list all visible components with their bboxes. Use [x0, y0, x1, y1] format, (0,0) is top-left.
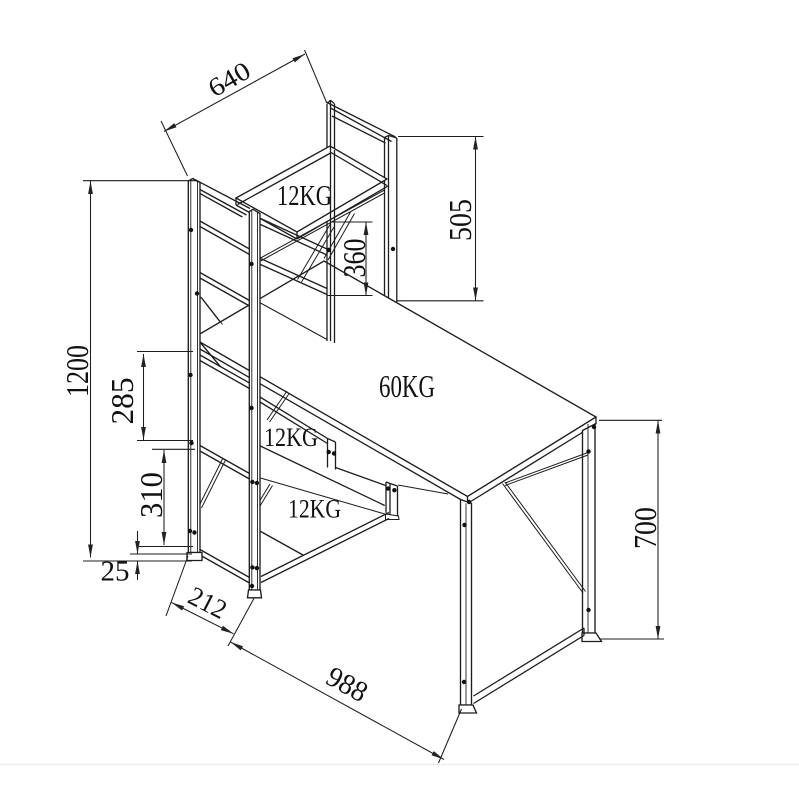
svg-text:360: 360 [336, 239, 372, 278]
svg-text:1200: 1200 [59, 345, 95, 397]
svg-text:12KG: 12KG [288, 495, 341, 524]
svg-text:310: 310 [133, 472, 169, 518]
svg-text:285: 285 [104, 378, 140, 425]
svg-text:505: 505 [442, 199, 478, 241]
svg-text:12KG: 12KG [277, 181, 332, 212]
svg-text:700: 700 [627, 507, 663, 549]
svg-text:12KG: 12KG [264, 423, 318, 452]
svg-text:60KG: 60KG [379, 368, 435, 404]
svg-text:25: 25 [101, 556, 130, 588]
